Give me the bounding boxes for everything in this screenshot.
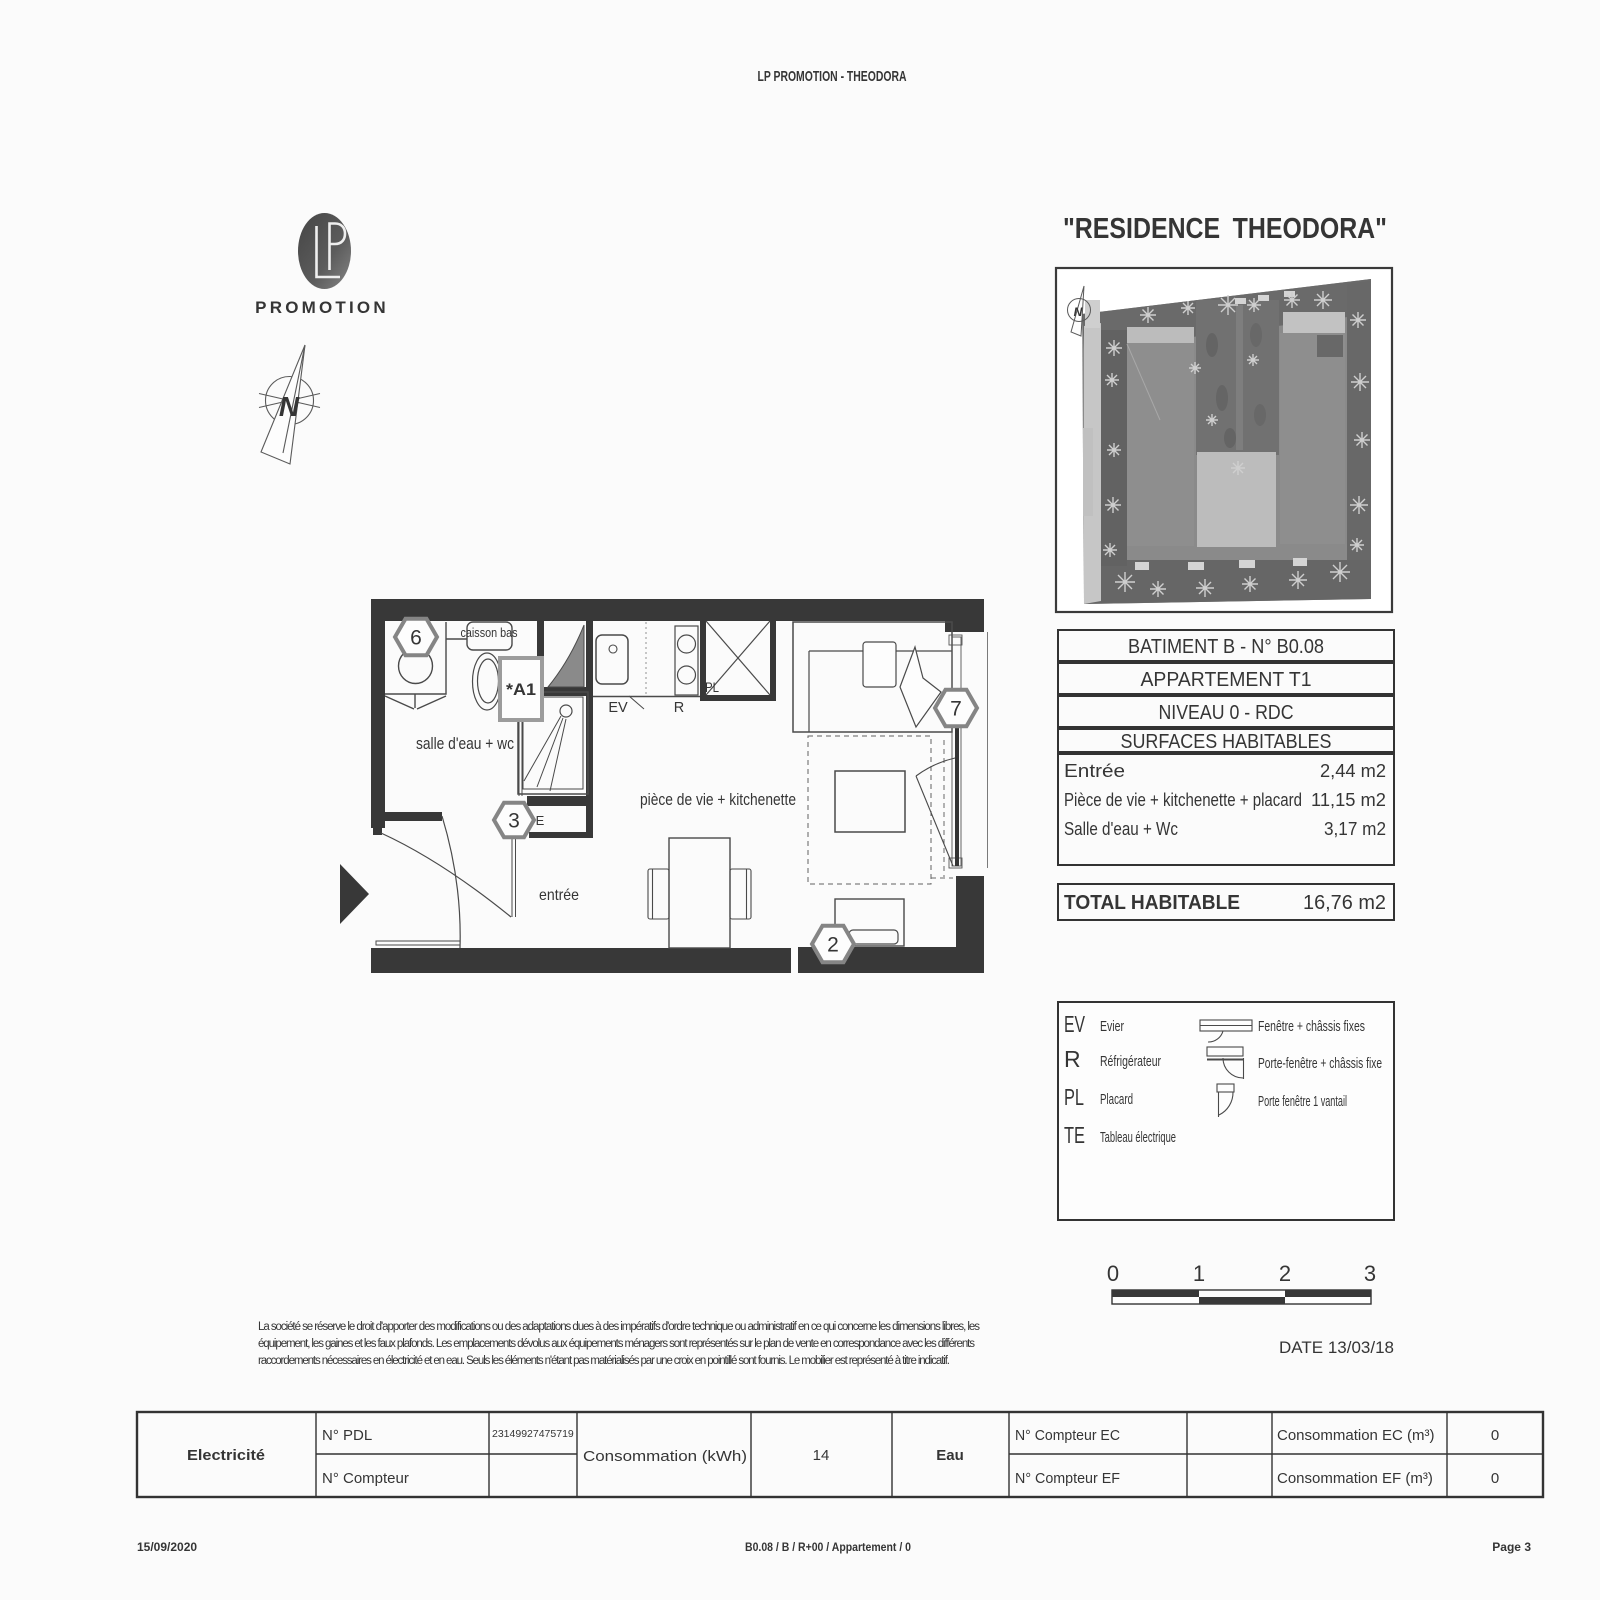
svg-text:Page 3: Page 3 xyxy=(1492,1540,1531,1554)
svg-text:BATIMENT B - N° B0.08: BATIMENT B - N° B0.08 xyxy=(1128,636,1324,658)
svg-text:Porte-fenêtre + châssis fixe: Porte-fenêtre + châssis fixe xyxy=(1258,1055,1382,1072)
svg-text:pièce de vie + kitchenette: pièce de vie + kitchenette xyxy=(640,790,796,809)
svg-text:Evier: Evier xyxy=(1100,1018,1124,1035)
svg-text:"RESIDENCE THEODORA": "RESIDENCE THEODORA" xyxy=(1063,213,1387,245)
svg-text:Tableau électrique: Tableau électrique xyxy=(1100,1129,1176,1146)
svg-text:Entrée: Entrée xyxy=(1064,760,1125,781)
svg-text:PL: PL xyxy=(1064,1084,1084,1110)
svg-text:entrée: entrée xyxy=(539,887,579,904)
svg-text:0: 0 xyxy=(1491,1470,1499,1487)
svg-text:N° PDL: N° PDL xyxy=(322,1427,372,1444)
svg-text:Salle d'eau + Wc: Salle d'eau + Wc xyxy=(1064,818,1178,839)
svg-text:raccordements nécessaires en é: raccordements nécessaires en électricité… xyxy=(258,1355,950,1367)
svg-text:7: 7 xyxy=(950,698,962,721)
svg-text:3,17 m2: 3,17 m2 xyxy=(1324,818,1386,839)
svg-text:R: R xyxy=(674,700,684,716)
svg-text:0: 0 xyxy=(1107,1261,1119,1286)
svg-text:PL: PL xyxy=(705,679,719,695)
svg-text:Consommation EC (m³): Consommation EC (m³) xyxy=(1277,1427,1435,1444)
svg-text:1: 1 xyxy=(1193,1261,1205,1286)
svg-text:Electricité: Electricité xyxy=(187,1447,265,1464)
svg-text:23149927475719: 23149927475719 xyxy=(492,1428,574,1440)
svg-text:3: 3 xyxy=(508,810,520,833)
svg-text:6: 6 xyxy=(410,627,422,650)
svg-text:TOTAL HABITABLE: TOTAL HABITABLE xyxy=(1064,892,1240,914)
svg-text:15/09/2020: 15/09/2020 xyxy=(137,1540,197,1554)
svg-text:N° Compteur EC: N° Compteur EC xyxy=(1015,1427,1120,1444)
svg-text:LP PROMOTION - THEODORA: LP PROMOTION - THEODORA xyxy=(758,68,907,85)
svg-text:Fenêtre + châssis fixes: Fenêtre + châssis fixes xyxy=(1258,1018,1365,1035)
svg-text:N° Compteur EF: N° Compteur EF xyxy=(1015,1470,1120,1487)
svg-text:2: 2 xyxy=(827,934,839,957)
svg-text:caisson bas: caisson bas xyxy=(461,626,518,640)
svg-text:EV: EV xyxy=(1064,1011,1085,1037)
svg-text:équipement, les gaines et les: équipement, les gaines et les faux plafo… xyxy=(258,1338,975,1350)
svg-text:Consommation (kWh): Consommation (kWh) xyxy=(583,1448,747,1465)
svg-text:E: E xyxy=(536,813,545,828)
svg-text:N: N xyxy=(1074,305,1083,319)
svg-text:*A1: *A1 xyxy=(506,680,536,699)
svg-text:Consommation EF (m³): Consommation EF (m³) xyxy=(1277,1470,1433,1487)
svg-text:0: 0 xyxy=(1491,1427,1499,1444)
svg-text:N: N xyxy=(279,391,300,422)
svg-text:NIVEAU 0 - RDC: NIVEAU 0 - RDC xyxy=(1159,702,1294,724)
svg-text:La société se réserve le droit: La société se réserve le droit d'apporte… xyxy=(258,1321,980,1333)
svg-text:Réfrigérateur: Réfrigérateur xyxy=(1100,1053,1161,1070)
svg-text:2,44 m2: 2,44 m2 xyxy=(1320,760,1386,781)
svg-text:PROMOTION: PROMOTION xyxy=(255,298,389,317)
svg-text:APPARTEMENT T1: APPARTEMENT T1 xyxy=(1141,669,1312,691)
svg-text:Pièce de vie + kitchenette + p: Pièce de vie + kitchenette + placard xyxy=(1064,789,1302,810)
svg-text:N° Compteur: N° Compteur xyxy=(322,1470,409,1487)
svg-text:EV: EV xyxy=(608,700,628,716)
svg-text:Porte fenêtre 1 vantail: Porte fenêtre 1 vantail xyxy=(1258,1093,1347,1110)
svg-text:11,15 m2: 11,15 m2 xyxy=(1311,789,1386,810)
svg-text:B0.08 / B / R+00 / Appartement: B0.08 / B / R+00 / Appartement / 0 xyxy=(745,1540,911,1554)
svg-text:Placard: Placard xyxy=(1100,1091,1133,1108)
svg-text:SURFACES HABITABLES: SURFACES HABITABLES xyxy=(1121,731,1332,753)
svg-text:14: 14 xyxy=(813,1447,830,1464)
svg-text:16,76 m2: 16,76 m2 xyxy=(1303,892,1386,914)
svg-text:2: 2 xyxy=(1279,1261,1291,1286)
svg-text:Eau: Eau xyxy=(936,1447,964,1464)
svg-text:DATE 13/03/18: DATE 13/03/18 xyxy=(1279,1338,1394,1357)
svg-text:salle d'eau + wc: salle d'eau + wc xyxy=(416,735,514,753)
svg-text:TE: TE xyxy=(1064,1122,1085,1148)
svg-text:R: R xyxy=(1064,1046,1081,1072)
svg-text:3: 3 xyxy=(1364,1261,1376,1286)
